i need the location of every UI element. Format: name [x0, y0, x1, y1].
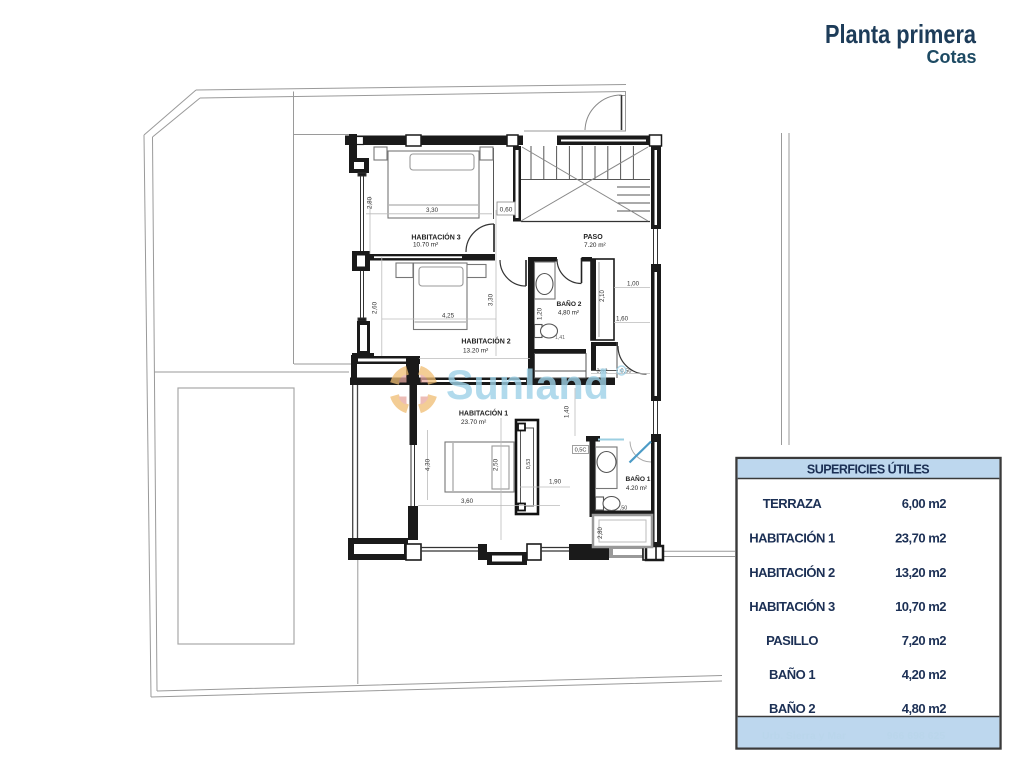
svg-text:HABITACIÓN 1: HABITACIÓN 1: [459, 409, 508, 418]
svg-text:3,30: 3,30: [488, 293, 495, 306]
svg-text:2,50: 2,50: [493, 458, 500, 471]
svg-text:SUPERFICIES ÚTILES: SUPERFICIES ÚTILES: [807, 462, 929, 477]
svg-text:1,20: 1,20: [537, 307, 544, 320]
svg-text:2,80: 2,80: [367, 196, 374, 209]
svg-text:7.20 m²: 7.20 m²: [584, 242, 606, 249]
svg-text:Urb. Sierra y Mar: Urb. Sierra y Mar: [762, 730, 846, 742]
svg-text:23,70 m2: 23,70 m2: [895, 531, 946, 546]
svg-text:13,20 m2: 13,20 m2: [895, 565, 946, 580]
svg-text:BAÑO 2: BAÑO 2: [769, 701, 815, 716]
svg-text:Cotas: Cotas: [926, 47, 976, 67]
svg-text:TERRAZA: TERRAZA: [763, 496, 823, 511]
svg-text:2,80: 2,80: [598, 527, 604, 539]
svg-text:HABITACIÓN 2: HABITACIÓN 2: [461, 337, 510, 346]
svg-text:4.20 m²: 4.20 m²: [626, 485, 647, 492]
svg-text:HABITACIÓN 1: HABITACIÓN 1: [749, 531, 835, 546]
svg-text:BAÑO 2: BAÑO 2: [557, 299, 582, 308]
svg-text:Sunland: Sunland: [446, 361, 609, 408]
svg-text:23.70 m²: 23.70 m²: [461, 419, 486, 426]
svg-text:1,41: 1,41: [555, 335, 565, 341]
svg-text:BAÑO 1: BAÑO 1: [626, 474, 651, 483]
svg-text:4,20 m2: 4,20 m2: [902, 667, 946, 682]
svg-text:10.70 m²: 10.70 m²: [413, 242, 438, 249]
svg-text:7,20 m2: 7,20 m2: [902, 633, 946, 648]
svg-text:4,30: 4,30: [425, 458, 432, 471]
svg-text:Planta primera: Planta primera: [825, 19, 976, 49]
svg-text:PASO: PASO: [583, 234, 603, 241]
svg-text:0,60: 0,60: [500, 207, 513, 214]
svg-text:PASILLO: PASILLO: [766, 633, 818, 648]
svg-text:13.20 m²: 13.20 m²: [463, 348, 488, 355]
svg-text:1,90: 1,90: [549, 479, 562, 486]
svg-text:3,60: 3,60: [461, 498, 474, 505]
svg-text:6,00 m2: 6,00 m2: [902, 496, 946, 511]
svg-text:4,80 m²: 4,80 m²: [558, 310, 579, 317]
svg-text:R: R: [619, 369, 624, 376]
svg-text:BAÑO 1: BAÑO 1: [769, 667, 815, 682]
svg-text:1,00: 1,00: [627, 281, 640, 288]
svg-text:HABITACIÓN 3: HABITACIÓN 3: [411, 233, 460, 242]
svg-text:2,60: 2,60: [372, 301, 379, 314]
svg-text:0,53: 0,53: [526, 459, 532, 470]
svg-text:10,70 m2: 10,70 m2: [895, 599, 946, 614]
svg-text:4,25: 4,25: [442, 313, 455, 320]
svg-text:0,5C: 0,5C: [575, 448, 587, 454]
svg-text:1,60: 1,60: [616, 316, 629, 323]
svg-text:,50: ,50: [620, 506, 628, 512]
svg-text:4,80 m2: 4,80 m2: [902, 701, 946, 716]
svg-text:966 698 625: 966 698 625: [887, 730, 946, 742]
svg-text:HABITACIÓN 2: HABITACIÓN 2: [749, 565, 835, 580]
svg-text:3,30: 3,30: [426, 207, 439, 214]
svg-text:2,10: 2,10: [600, 290, 606, 302]
svg-text:HABITACIÓN 3: HABITACIÓN 3: [749, 599, 835, 614]
